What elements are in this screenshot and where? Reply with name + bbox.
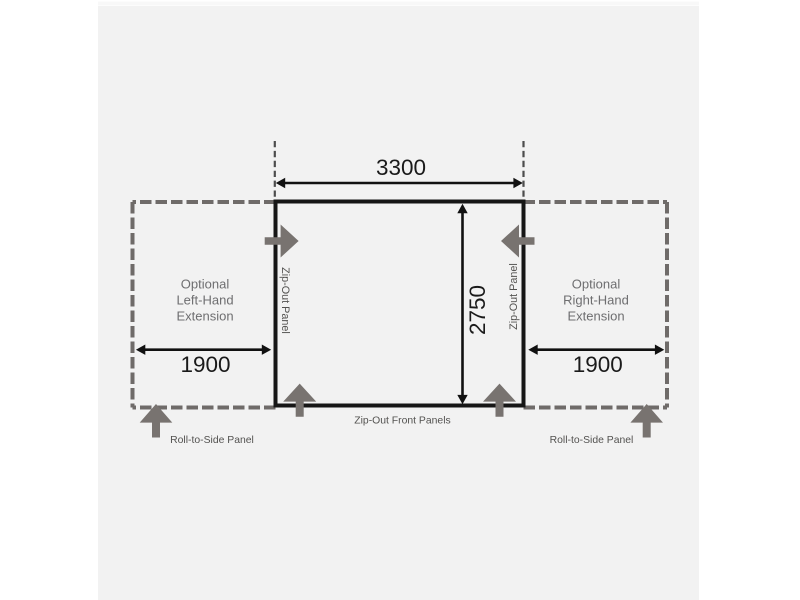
svg-text:Zip-Out Panel: Zip-Out Panel [279,267,291,334]
svg-text:Extension: Extension [176,308,233,323]
svg-text:Roll-to-Side Panel: Roll-to-Side Panel [170,435,254,446]
svg-text:Extension: Extension [567,308,624,323]
svg-text:Zip-Out Panel: Zip-Out Panel [508,263,520,330]
svg-text:3300: 3300 [376,155,426,180]
svg-text:1900: 1900 [573,352,623,377]
svg-text:Zip-Out Front Panels: Zip-Out Front Panels [354,416,450,427]
svg-text:Right-Hand: Right-Hand [563,293,629,308]
svg-text:Left-Hand: Left-Hand [176,293,233,308]
svg-text:1900: 1900 [180,352,230,377]
svg-text:Optional: Optional [181,277,230,292]
svg-text:Optional: Optional [572,277,621,292]
svg-text:Roll-to-Side Panel: Roll-to-Side Panel [550,435,634,446]
svg-text:2750: 2750 [465,285,490,335]
